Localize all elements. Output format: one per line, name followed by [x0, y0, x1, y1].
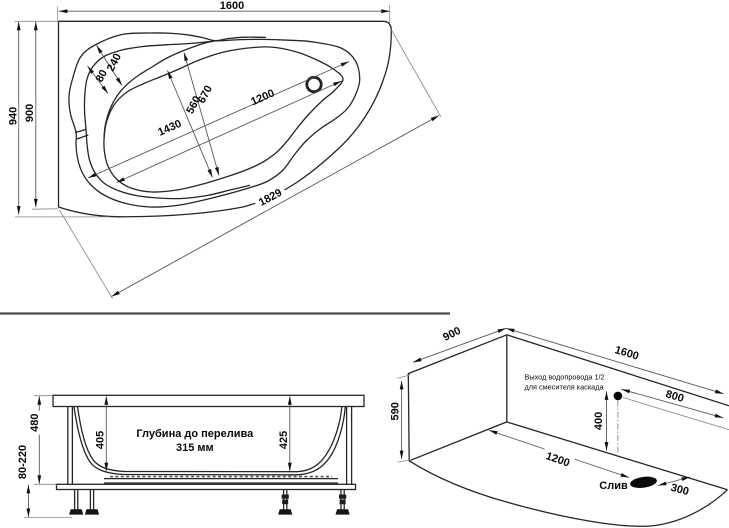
- svg-text:940: 940: [7, 107, 19, 125]
- svg-text:1600: 1600: [220, 0, 244, 12]
- svg-text:Слив: Слив: [599, 480, 628, 492]
- svg-text:для смесителя каскада: для смесителя каскада: [525, 383, 605, 392]
- svg-text:405: 405: [94, 431, 106, 449]
- svg-text:Выход водопровода 1/2: Выход водопровода 1/2: [525, 373, 605, 382]
- svg-text:900: 900: [24, 104, 36, 122]
- svg-text:480: 480: [29, 414, 41, 432]
- svg-text:80-220: 80-220: [17, 445, 29, 479]
- svg-text:Глубина до перелива: Глубина до перелива: [136, 428, 254, 440]
- svg-text:315 мм: 315 мм: [176, 442, 214, 454]
- svg-text:400: 400: [593, 412, 605, 430]
- svg-text:425: 425: [278, 431, 290, 449]
- svg-text:590: 590: [389, 402, 401, 420]
